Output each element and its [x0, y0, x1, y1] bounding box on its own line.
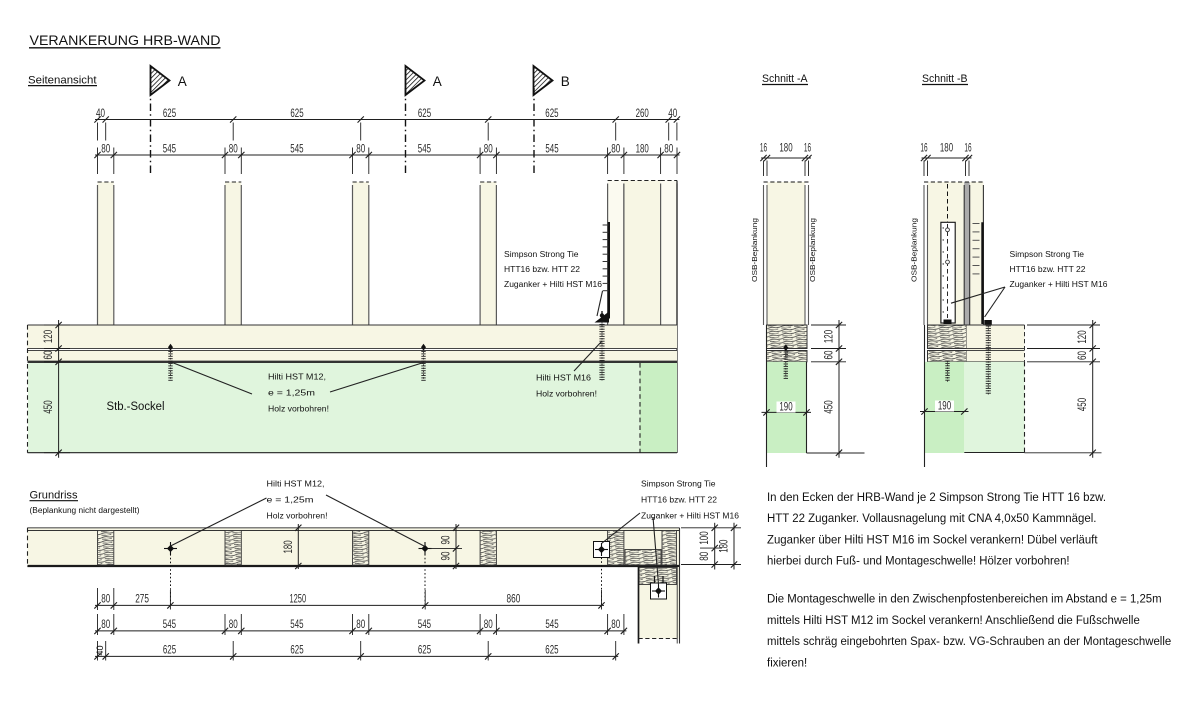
svg-text:625: 625 — [163, 107, 176, 120]
svg-text:180: 180 — [779, 142, 792, 155]
svg-text:80: 80 — [229, 618, 238, 631]
svg-text:90: 90 — [440, 552, 453, 561]
svg-text:hierbei durch Fuß- und Montage: hierbei durch Fuß- und Montageschwelle! … — [767, 554, 1070, 568]
svg-text:fixieren!: fixieren! — [767, 655, 807, 669]
svg-text:80: 80 — [611, 618, 620, 631]
svg-text:Zuganker + Hilti HST M16: Zuganker + Hilti HST M16 — [504, 280, 602, 289]
svg-text:180: 180 — [636, 143, 649, 156]
svg-text:545: 545 — [290, 618, 303, 631]
svg-text:80: 80 — [484, 618, 493, 631]
svg-text:16: 16 — [760, 142, 767, 155]
svg-text:Grundriss: Grundriss — [30, 490, 78, 502]
svg-text:Zuganker + Hilti HST M16: Zuganker + Hilti HST M16 — [641, 512, 739, 521]
svg-text:e = 1,25m: e = 1,25m — [268, 389, 315, 398]
svg-text:80: 80 — [101, 593, 110, 606]
svg-text:180: 180 — [718, 540, 731, 553]
svg-text:HTT16 bzw. HTT 22: HTT16 bzw. HTT 22 — [641, 496, 717, 505]
svg-text:OSB-Beplankung: OSB-Beplankung — [910, 218, 919, 282]
svg-text:190: 190 — [938, 400, 951, 413]
svg-text:625: 625 — [290, 644, 303, 657]
svg-text:A: A — [433, 74, 442, 89]
svg-text:80: 80 — [698, 552, 711, 561]
svg-text:100: 100 — [698, 531, 711, 544]
svg-text:860: 860 — [507, 593, 521, 606]
svg-text:625: 625 — [418, 644, 431, 657]
svg-text:545: 545 — [418, 618, 431, 631]
svg-text:545: 545 — [418, 143, 431, 156]
svg-text:Stb.-Sockel: Stb.-Sockel — [107, 399, 165, 413]
svg-text:16: 16 — [964, 142, 971, 155]
svg-text:80: 80 — [101, 618, 110, 631]
svg-text:545: 545 — [545, 143, 558, 156]
svg-text:OSB-Beplankung: OSB-Beplankung — [750, 218, 759, 282]
svg-text:120: 120 — [42, 330, 55, 343]
svg-text:545: 545 — [290, 143, 303, 156]
svg-text:HTT16 bzw. HTT 22: HTT16 bzw. HTT 22 — [1010, 265, 1086, 274]
svg-text:450: 450 — [1076, 398, 1089, 411]
svg-text:Holz vorbohren!: Holz vorbohren! — [536, 390, 597, 399]
svg-text:60: 60 — [823, 351, 836, 360]
svg-text:Holz vorbohren!: Holz vorbohren! — [267, 512, 328, 521]
svg-text:190: 190 — [779, 401, 792, 414]
svg-text:16: 16 — [804, 142, 811, 155]
svg-text:545: 545 — [163, 618, 176, 631]
svg-text:Schnitt -A: Schnitt -A — [762, 73, 808, 85]
svg-text:Holz vorbohren!: Holz vorbohren! — [268, 405, 329, 414]
svg-text:260: 260 — [636, 107, 649, 120]
svg-text:80: 80 — [611, 143, 620, 156]
svg-text:120: 120 — [823, 330, 836, 343]
svg-text:625: 625 — [290, 107, 303, 120]
svg-text:Zuganker + Hilti HST M16: Zuganker + Hilti HST M16 — [1010, 280, 1108, 289]
svg-text:60: 60 — [1076, 351, 1089, 360]
svg-text:625: 625 — [418, 107, 431, 120]
svg-text:80: 80 — [664, 143, 673, 156]
svg-text:mittels Hilti HST M12 im Socke: mittels Hilti HST M12 im Sockel veranker… — [767, 613, 1140, 627]
svg-text:625: 625 — [545, 107, 558, 120]
svg-text:Simpson Strong Tie: Simpson Strong Tie — [1010, 250, 1085, 259]
svg-text:180: 180 — [940, 142, 953, 155]
svg-text:mittels schräg eingebohrten Sp: mittels schräg eingebohrten Spax- bzw. V… — [767, 634, 1171, 648]
svg-text:450: 450 — [823, 400, 836, 413]
svg-text:HTT 22 Zuganker. Vollausnagelu: HTT 22 Zuganker. Vollausnagelung mit CNA… — [767, 511, 1097, 525]
svg-text:40: 40 — [668, 107, 677, 120]
svg-text:120: 120 — [1076, 330, 1089, 343]
svg-text:80: 80 — [101, 143, 110, 156]
svg-text:80: 80 — [484, 143, 493, 156]
svg-text:625: 625 — [163, 644, 176, 657]
svg-text:Simpson Strong Tie: Simpson Strong Tie — [504, 250, 579, 259]
svg-text:16: 16 — [920, 142, 927, 155]
svg-text:545: 545 — [163, 143, 176, 156]
svg-text:450: 450 — [42, 400, 55, 413]
svg-text:90: 90 — [440, 536, 453, 545]
svg-text:Hilti HST M12,: Hilti HST M12, — [267, 480, 325, 489]
svg-text:e = 1,25m: e = 1,25m — [267, 496, 314, 505]
svg-text:80: 80 — [356, 143, 365, 156]
svg-text:1250: 1250 — [290, 593, 307, 606]
svg-text:40: 40 — [95, 645, 105, 655]
svg-text:OSB-Beplankung: OSB-Beplankung — [808, 218, 817, 282]
svg-text:40: 40 — [96, 107, 105, 120]
svg-text:Zuganker über Hilti HST M16 im: Zuganker über Hilti HST M16 im Sockel ve… — [767, 532, 1098, 546]
svg-text:Die Montageschwelle in den Zwi: Die Montageschwelle in den Zwischenpfost… — [767, 592, 1162, 606]
svg-text:Simpson Strong Tie: Simpson Strong Tie — [641, 480, 716, 489]
svg-text:B: B — [561, 74, 570, 89]
svg-text:Hilti HST M12,: Hilti HST M12, — [268, 373, 326, 382]
svg-text:Hilti HST M16: Hilti HST M16 — [536, 374, 591, 383]
svg-text:60: 60 — [42, 351, 55, 360]
svg-text:A: A — [178, 74, 187, 89]
svg-text:HTT16 bzw. HTT 22: HTT16 bzw. HTT 22 — [504, 265, 580, 274]
svg-text:275: 275 — [135, 593, 149, 606]
svg-text:80: 80 — [229, 143, 238, 156]
svg-text:In den Ecken der HRB-Wand je 2: In den Ecken der HRB-Wand je 2 Simpson S… — [767, 490, 1106, 504]
svg-text:80: 80 — [356, 618, 365, 631]
svg-text:180: 180 — [282, 540, 295, 553]
svg-text:Seitenansicht: Seitenansicht — [28, 74, 97, 86]
svg-text:625: 625 — [545, 644, 558, 657]
svg-text:VERANKERUNG HRB-WAND: VERANKERUNG HRB-WAND — [30, 33, 221, 48]
svg-text:545: 545 — [545, 618, 558, 631]
svg-text:(Beplankung nicht dargestellt): (Beplankung nicht dargestellt) — [30, 506, 140, 515]
svg-text:Schnitt -B: Schnitt -B — [922, 73, 968, 85]
